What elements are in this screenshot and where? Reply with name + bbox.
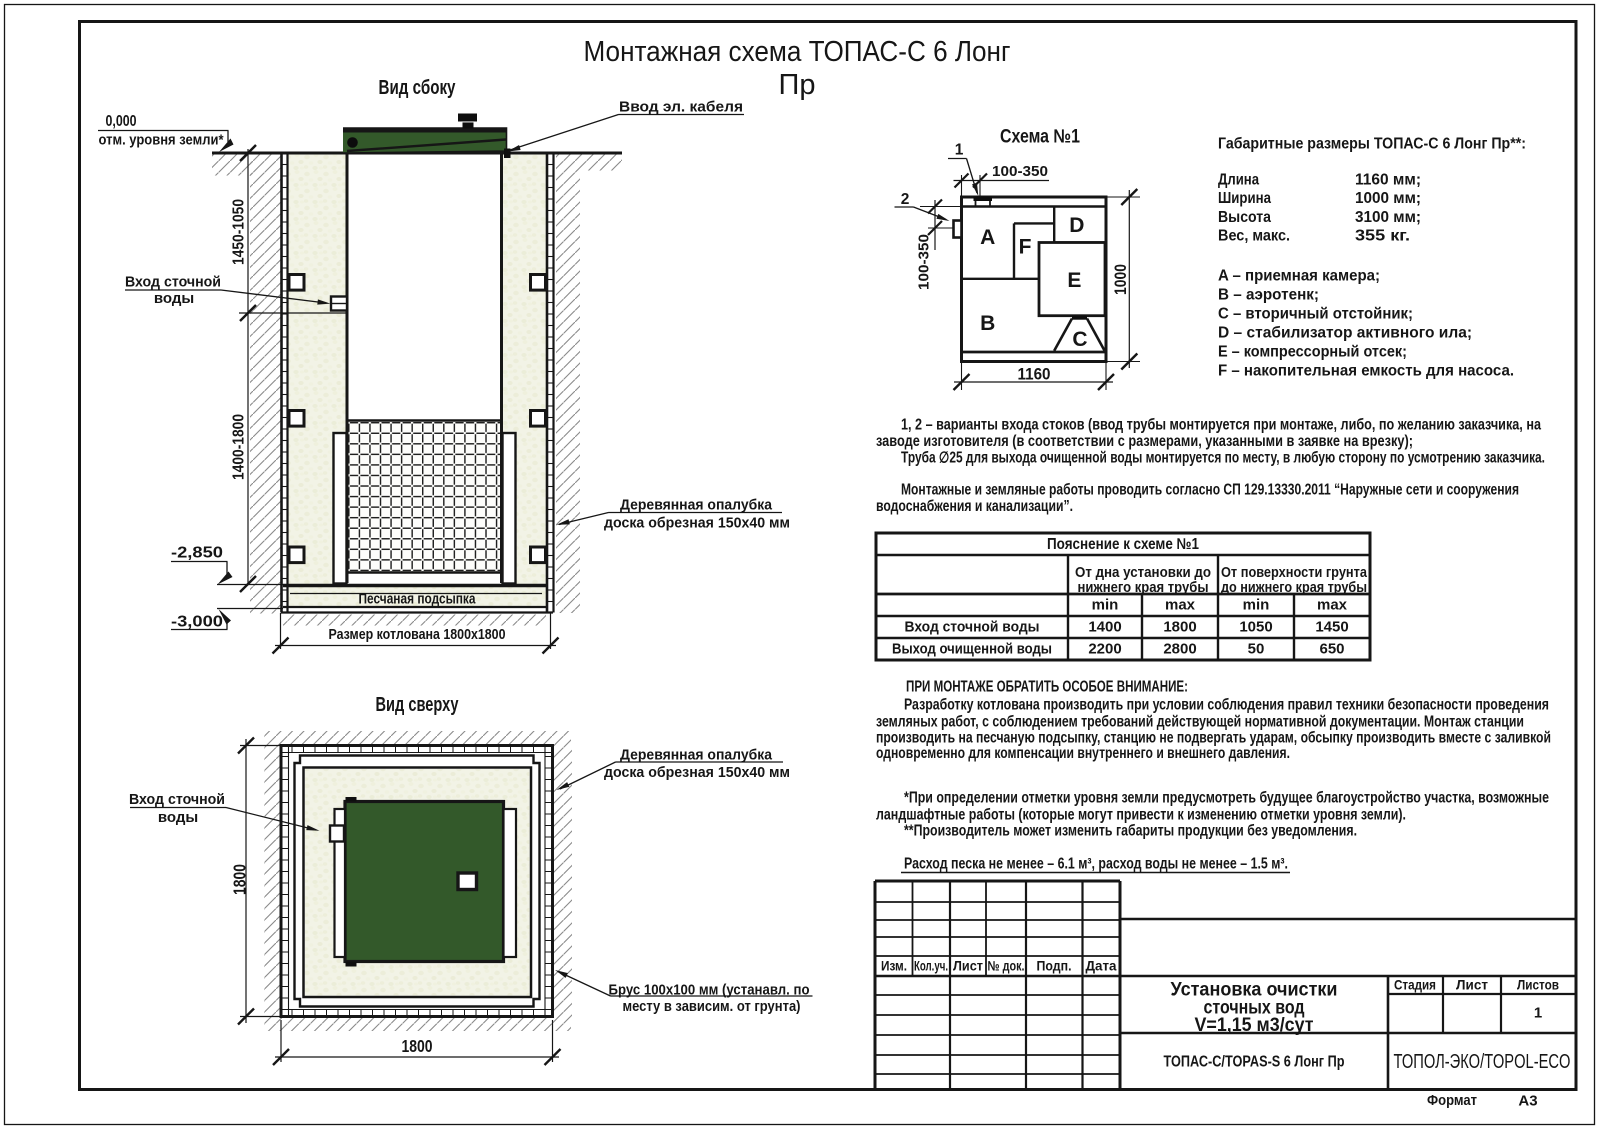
svg-text:Деревянная опалубка: Деревянная опалубка [620, 747, 773, 764]
svg-text:100-350: 100-350 [992, 163, 1048, 180]
svg-text:ТОПАС-С/TOPAS-S 6 Лонг Пр: ТОПАС-С/TOPAS-S 6 Лонг Пр [1164, 1054, 1345, 1071]
svg-text:Изм.: Изм. [881, 959, 907, 974]
svg-text:Выход очищенной воды: Выход очищенной воды [892, 641, 1052, 658]
svg-text:воды: воды [154, 290, 194, 307]
svg-text:A: A [980, 226, 995, 249]
svg-text:1: 1 [955, 142, 964, 159]
svg-text:Высота: Высота [1218, 209, 1271, 226]
svg-text:Труба ∅25 для выхода очищенной: Труба ∅25 для выхода очищенной воды монт… [901, 450, 1545, 467]
svg-text:А3: А3 [1518, 1093, 1537, 1110]
svg-text:заводе изготовителя (в соответ: заводе изготовителя (в соответствии с ра… [876, 433, 1413, 450]
svg-text:1800: 1800 [1163, 619, 1196, 636]
svg-text:50: 50 [1248, 641, 1265, 658]
svg-text:Вид сбоку: Вид сбоку [379, 77, 457, 99]
svg-text:1050: 1050 [1239, 619, 1272, 636]
svg-text:Деревянная опалубка: Деревянная опалубка [620, 497, 773, 514]
svg-text:100-350: 100-350 [916, 234, 933, 290]
svg-text:2200: 2200 [1088, 641, 1121, 658]
svg-text:отм. уровня земли*: отм. уровня земли* [99, 133, 224, 149]
svg-text:водоснабжения и канализации”.: водоснабжения и канализации”. [876, 498, 1073, 515]
svg-text:производить на песчаную подсып: производить на песчаную подсыпку, станци… [876, 730, 1551, 747]
svg-text:-2,850: -2,850 [171, 545, 223, 562]
svg-text:F: F [1019, 235, 1032, 258]
svg-text:Стадия: Стадия [1394, 978, 1436, 993]
svg-text:1, 2 – варианты входа стоков: 1, 2 – варианты входа стоков (ввод трубы… [901, 417, 1541, 434]
svg-text:1000: 1000 [1111, 264, 1130, 295]
svg-text:Расход песка не менее – 6.1 м³: Расход песка не менее – 6.1 м³, расход в… [904, 856, 1288, 873]
svg-text:земляных работ, с соблюдением: земляных работ, с соблюдением требований… [876, 714, 1524, 731]
svg-text:1400-1800: 1400-1800 [231, 414, 248, 480]
svg-text:Пояснение к схеме №1: Пояснение к схеме №1 [1047, 536, 1199, 553]
svg-text:1000 мм;: 1000 мм; [1355, 190, 1421, 207]
svg-text:воды: воды [158, 809, 198, 826]
svg-text:Вход сточной: Вход сточной [129, 791, 225, 808]
svg-text:1: 1 [1534, 1005, 1542, 1022]
svg-text:Формат: Формат [1427, 1093, 1477, 1109]
svg-text:650: 650 [1319, 641, 1344, 658]
svg-text:Пр: Пр [779, 69, 816, 101]
svg-text:355 кг.: 355 кг. [1355, 228, 1410, 245]
svg-text:C – вторичный отстойник;: C – вторичный отстойник; [1218, 306, 1413, 323]
svg-text:1800: 1800 [229, 864, 249, 895]
svg-text:Песчаная подсыпка: Песчаная подсыпка [359, 591, 477, 608]
svg-text:D: D [1069, 214, 1084, 237]
svg-text:Монтажные и земляные работы пр: Монтажные и земляные работы проводить со… [901, 482, 1519, 499]
svg-text:доска обрезная 150х40 мм: доска обрезная 150х40 мм [604, 764, 790, 781]
svg-text:max: max [1165, 597, 1196, 614]
svg-text:ландшафтные работы (которые мо: ландшафтные работы (которые могут привес… [876, 807, 1406, 824]
svg-text:A – приемная камера;: A – приемная камера; [1218, 268, 1380, 285]
svg-text:min: min [1243, 597, 1270, 614]
svg-text:От поверхности грунта: От поверхности грунта [1221, 565, 1368, 581]
svg-text:Лист: Лист [1456, 978, 1488, 993]
svg-text:месту в зависим. от грунта): месту в зависим. от грунта) [623, 998, 801, 1015]
svg-text:Вход сточной воды: Вход сточной воды [905, 619, 1040, 636]
svg-text:Кол.уч.: Кол.уч. [914, 959, 948, 974]
svg-text:Листов: Листов [1517, 978, 1559, 993]
svg-text:ТОПОЛ-ЭКО/TOPOL-ECO: ТОПОЛ-ЭКО/TOPOL-ECO [1394, 1051, 1571, 1073]
svg-text:B – аэротенк;: B – аэротенк; [1218, 287, 1319, 304]
svg-text:доска обрезная 150х40 мм: доска обрезная 150х40 мм [604, 515, 790, 532]
svg-text:V=1,15 м3/сут: V=1,15 м3/сут [1195, 1015, 1314, 1036]
svg-text:Подп.: Подп. [1037, 959, 1072, 974]
svg-text:2: 2 [901, 191, 910, 208]
svg-text:max: max [1317, 597, 1348, 614]
svg-text:1160 мм;: 1160 мм; [1355, 172, 1421, 189]
svg-text:Размер котлована 1800х1800: Размер котлована 1800х1800 [329, 626, 506, 643]
svg-text:до нижнего края трубы: до нижнего края трубы [1221, 580, 1367, 596]
svg-text:Ширина: Ширина [1218, 190, 1271, 207]
svg-text:№ док.: № док. [988, 959, 1025, 974]
svg-text:**Производитель может изменить: **Производитель может изменить габариты … [904, 823, 1357, 840]
svg-text:1400: 1400 [1088, 619, 1121, 636]
svg-text:min: min [1092, 597, 1119, 614]
svg-text:Вид сверху: Вид сверху [376, 694, 460, 716]
svg-text:F – накопительная емкость для: F – накопительная емкость для насоса. [1218, 363, 1514, 380]
svg-text:Лист: Лист [953, 959, 983, 974]
svg-text:От дна установки до: От дна установки до [1075, 565, 1211, 581]
svg-text:Вход сточной: Вход сточной [125, 274, 221, 291]
svg-text:ПРИ МОНТАЖЕ ОБРАТИТЬ ОСОБОЕ ВН: ПРИ МОНТАЖЕ ОБРАТИТЬ ОСОБОЕ ВНИМАНИЕ: [906, 679, 1188, 696]
svg-text:C: C [1072, 328, 1087, 351]
svg-text:Монтажная схема ТОПАС-С 6 Лонг: Монтажная схема ТОПАС-С 6 Лонг [584, 36, 1011, 68]
svg-text:Вес, макс.: Вес, макс. [1218, 228, 1290, 245]
svg-text:E: E [1067, 269, 1081, 292]
svg-text:Схема №1: Схема №1 [1000, 127, 1080, 148]
svg-text:1160: 1160 [1018, 365, 1051, 384]
svg-text:1450: 1450 [1315, 619, 1348, 636]
svg-text:Габаритные размеры ТОПАС-С 6 Л: Габаритные размеры ТОПАС-С 6 Лонг Пр**: [1218, 136, 1526, 153]
svg-text:одновременно для компенсации в: одновременно для компенсации внутреннего… [876, 745, 1290, 762]
svg-text:0,000: 0,000 [106, 113, 137, 130]
svg-text:-3,000: -3,000 [171, 614, 223, 631]
svg-text:Дата: Дата [1086, 959, 1117, 974]
svg-text:D – стабилизатор активного ила: D – стабилизатор активного ила; [1218, 325, 1472, 342]
svg-text:нижнего края трубы: нижнего края трубы [1078, 580, 1209, 596]
svg-text:1450-1050: 1450-1050 [231, 199, 248, 265]
svg-text:Ввод эл. кабеля: Ввод эл. кабеля [619, 99, 743, 116]
svg-text:Длина: Длина [1218, 172, 1259, 189]
svg-text:2800: 2800 [1163, 641, 1196, 658]
svg-text:3100 мм;: 3100 мм; [1355, 209, 1421, 226]
svg-text:Разработку котлована производи: Разработку котлована производить при усл… [904, 697, 1549, 714]
svg-text:1800: 1800 [402, 1036, 433, 1056]
svg-text:B: B [980, 312, 995, 335]
svg-text:*При определении отметки уровн: *При определении отметки уровня земли пр… [904, 790, 1549, 807]
svg-text:E – компрессорный отсек;: E – компрессорный отсек; [1218, 344, 1407, 361]
